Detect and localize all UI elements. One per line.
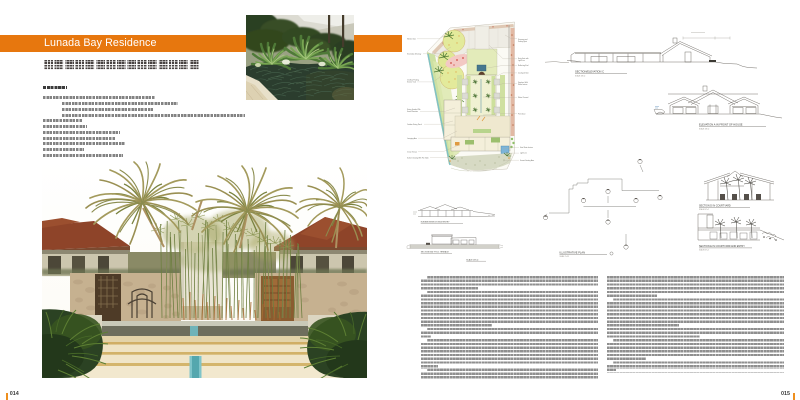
- svg-text:Secondary Driveway: Secondary Driveway: [407, 53, 421, 56]
- svg-text:SCALE 1/8"=1': SCALE 1/8"=1': [699, 248, 710, 251]
- svg-text:Lounging Area: Lounging Area: [407, 137, 417, 140]
- svg-text:ELEVATION A IN FRONT OF HOUSE: ELEVATION A IN FRONT OF HOUSE: [699, 123, 743, 127]
- svg-text:Entry Gate with: Entry Gate with: [518, 57, 529, 60]
- svg-text:SCALE 1"=20': SCALE 1"=20': [560, 255, 570, 257]
- svg-text:SECTION B AT POOL TERRACE: SECTION B AT POOL TERRACE: [421, 250, 450, 253]
- svg-text:SCALE 1/8"=1': SCALE 1/8"=1': [466, 258, 479, 261]
- svg-text:Outdoor Dining Porch: Outdoor Dining Porch: [407, 123, 422, 126]
- svg-text:Front Door: Front Door: [518, 112, 526, 115]
- svg-text:SECTION D IN COURTYARD: SECTION D IN COURTYARD: [699, 205, 731, 208]
- svg-text:Sunset Seating Area: Sunset Seating Area: [520, 159, 534, 162]
- svg-text:Fireplace With: Fireplace With: [518, 81, 528, 84]
- svg-text:Courtyard Gate: Courtyard Gate: [518, 72, 529, 75]
- svg-text:Overflow Parking: Overflow Parking: [407, 79, 419, 82]
- svg-text:SCALE 1/8"=1': SCALE 1/8"=1': [699, 128, 710, 131]
- svg-text:Sunken Seating With Fire Table: Sunken Seating With Fire Table: [407, 156, 429, 159]
- svg-text:SECTION E IN COURTYARD AND ENT: SECTION E IN COURTYARD AND ENTRY: [699, 245, 745, 248]
- svg-text:Dining Garden With: Dining Garden With: [407, 108, 421, 111]
- svg-text:ILLUSTRATIVE PLAN: ILLUSTRATIVE PLAN: [560, 251, 586, 255]
- svg-text:Water Channel: Water Channel: [518, 96, 529, 99]
- svg-text:Ocean Terrace: Ocean Terrace: [407, 151, 417, 154]
- svg-text:SECTION/ELEVATION C: SECTION/ELEVATION C: [575, 70, 604, 74]
- svg-text:Stair Water feature: Stair Water feature: [520, 146, 533, 149]
- svg-text:Light Line: Light Line: [520, 152, 527, 155]
- svg-text:SCALE 1/8"=1': SCALE 1/8"=1': [699, 208, 710, 211]
- svg-text:Vehicle Gate: Vehicle Gate: [407, 38, 416, 41]
- svg-text:Reflecting Pool: Reflecting Pool: [518, 64, 529, 67]
- svg-text:Driveway and: Driveway and: [518, 38, 528, 41]
- svg-text:ELEVATION/SECTION AT ENTRY: ELEVATION/SECTION AT ENTRY: [421, 221, 451, 224]
- svg-text:SCALE 1/8"=1': SCALE 1/8"=1': [575, 75, 586, 78]
